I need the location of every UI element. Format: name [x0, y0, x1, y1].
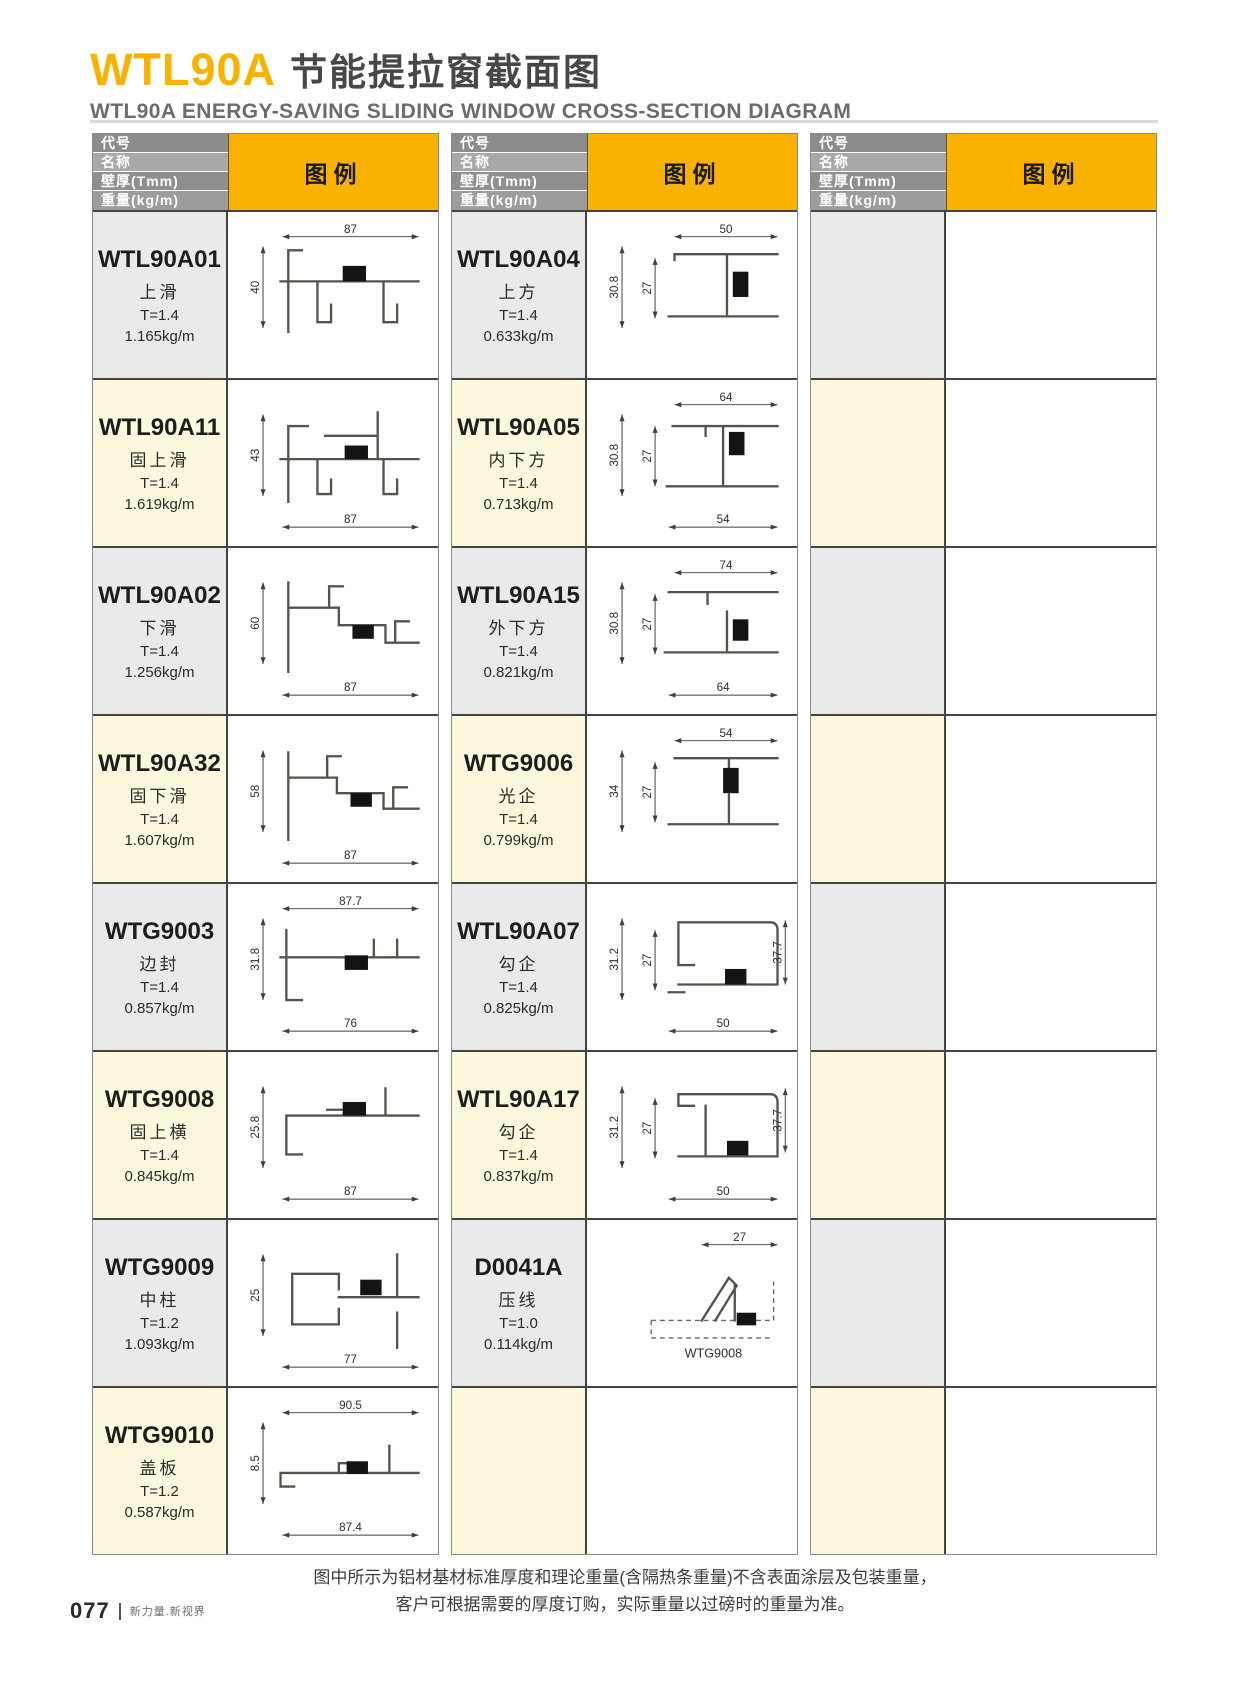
svg-text:34: 34: [608, 784, 621, 797]
profile-name: 中柱: [140, 1286, 180, 1311]
profile-weight: 0.799kg/m: [483, 832, 553, 849]
profile-info-cell: WTG9008固上横T=1.40.845kg/m: [93, 1052, 228, 1218]
diagram-cell: 8760: [228, 548, 438, 714]
table-header: 代号名称壁厚(Tmm)重量(kg/m)图例: [452, 134, 797, 212]
cross-section-drawing: 5031.22737.7: [589, 1055, 795, 1215]
table-row: [452, 1388, 797, 1554]
svg-text:87: 87: [344, 513, 357, 526]
profile-weight: 1.093kg/m: [124, 1336, 194, 1353]
profile-weight: 1.256kg/m: [124, 664, 194, 681]
svg-text:43: 43: [249, 449, 262, 462]
profile-name: 下滑: [140, 614, 180, 639]
profile-thickness: T=1.4: [499, 979, 538, 996]
profile-info-cell: WTG9006光企T=1.40.799kg/m: [452, 716, 587, 882]
diagram-cell: [946, 548, 1156, 714]
svg-text:40: 40: [249, 280, 262, 293]
diagram-cell: 27WTG9008: [587, 1220, 797, 1386]
profile-weight: 0.825kg/m: [483, 1000, 553, 1017]
profile-info-cell: [452, 1388, 587, 1554]
profile-weight: 1.165kg/m: [124, 328, 194, 345]
diagram-cell: 90.587.48.5: [228, 1388, 438, 1554]
header-field-label: 名称: [452, 153, 587, 172]
cross-section-drawing: 27WTG9008: [589, 1223, 795, 1383]
profile-thickness: T=1.4: [499, 475, 538, 492]
diagram-cell: 5030.827: [587, 212, 797, 378]
diagram-cell: [946, 1052, 1156, 1218]
diagram-cell: 8758: [228, 716, 438, 882]
profile-info-cell: [811, 212, 946, 378]
svg-text:8.5: 8.5: [249, 1455, 262, 1471]
svg-text:87.4: 87.4: [339, 1521, 362, 1534]
profile-thickness: T=1.2: [140, 1315, 179, 1332]
table-row: WTG9010盖板T=1.20.587kg/m90.587.48.5: [93, 1388, 438, 1554]
cross-section-drawing: 5031.22737.7: [589, 887, 795, 1047]
table-row: WTL90A15外下方T=1.40.821kg/m746430.827: [452, 548, 797, 716]
svg-text:37.7: 37.7: [771, 941, 784, 964]
header-field-label: 壁厚(Tmm): [452, 172, 587, 191]
diagram-cell: 5031.22737.7: [587, 1052, 797, 1218]
profile-info-cell: WTL90A07勾企T=1.40.825kg/m: [452, 884, 587, 1050]
page-footer: 077 新力量.新视界: [70, 1598, 206, 1624]
cross-section-drawing: 645430.827: [589, 383, 795, 543]
catalog-page: WTL90A 节能提拉窗截面图 WTL90A ENERGY-SAVING SLI…: [0, 0, 1239, 1681]
profile-name: 内下方: [489, 446, 549, 471]
svg-text:30.8: 30.8: [608, 276, 621, 299]
profile-info-cell: [811, 548, 946, 714]
profile-name: 上滑: [140, 278, 180, 303]
svg-text:76: 76: [344, 1017, 357, 1030]
profile-name: 固下滑: [130, 782, 190, 807]
profiles-table-3: 代号名称壁厚(Tmm)重量(kg/m)图例: [810, 133, 1157, 1555]
profile-name: 固上横: [130, 1118, 190, 1143]
diagram-cell: 543427: [587, 716, 797, 882]
svg-text:50: 50: [717, 1017, 730, 1030]
svg-text:WTG9008: WTG9008: [685, 1346, 743, 1360]
header-field-labels: 代号名称壁厚(Tmm)重量(kg/m): [452, 134, 587, 210]
profile-weight: 0.713kg/m: [483, 496, 553, 513]
profile-info-cell: WTL90A32固下滑T=1.41.607kg/m: [93, 716, 228, 882]
cross-section-drawing: 87.77631.8: [230, 887, 436, 1047]
svg-text:87: 87: [344, 681, 357, 694]
page-number: 077: [70, 1598, 110, 1624]
profile-code: WTL90A01: [98, 246, 221, 274]
profile-thickness: T=1.0: [499, 1315, 538, 1332]
divider-rule: [90, 120, 1158, 123]
cross-section-drawing: 8740: [230, 215, 436, 375]
profile-thickness: T=1.4: [499, 811, 538, 828]
diagram-cell: [946, 1388, 1156, 1554]
footer-note: 图中所示为铝材基材标准厚度和理论重量(含隔热条重量)不含表面涂层及包装重量， 客…: [92, 1564, 1158, 1618]
profile-info-cell: WTL90A11固上滑T=1.41.619kg/m: [93, 380, 228, 546]
legend-header: 图例: [587, 134, 797, 210]
profile-code: D0041A: [474, 1254, 562, 1282]
profile-code: WTG9008: [105, 1086, 214, 1114]
table-row: WTG9008固上横T=1.40.845kg/m8725.8: [93, 1052, 438, 1220]
profile-code: WTL90A07: [457, 918, 580, 946]
cross-section-drawing: 746430.827: [589, 551, 795, 711]
table-row: WTL90A11固上滑T=1.41.619kg/m8743: [93, 380, 438, 548]
table-row: WTG9003边封T=1.40.857kg/m87.77631.8: [93, 884, 438, 1052]
header-field-labels: 代号名称壁厚(Tmm)重量(kg/m): [811, 134, 946, 210]
profile-info-cell: WTL90A01上滑T=1.41.165kg/m: [93, 212, 228, 378]
svg-text:54: 54: [720, 727, 733, 740]
table-row: [811, 1388, 1156, 1554]
header-field-label: 重量(kg/m): [93, 191, 228, 210]
table-row: [811, 380, 1156, 548]
footer-tagline: 新力量.新视界: [130, 1603, 206, 1619]
diagram-cell: 746430.827: [587, 548, 797, 714]
table-row: WTL90A02下滑T=1.41.256kg/m8760: [93, 548, 438, 716]
svg-text:27: 27: [733, 1231, 746, 1244]
profile-code: WTG9003: [105, 918, 214, 946]
cross-section-drawing: 8743: [230, 383, 436, 543]
profile-thickness: T=1.4: [140, 643, 179, 660]
header-field-label: 重量(kg/m): [452, 191, 587, 210]
svg-text:87: 87: [344, 1185, 357, 1198]
profile-weight: 0.857kg/m: [124, 1000, 194, 1017]
profile-info-cell: [811, 1220, 946, 1386]
table-row: WTG9006光企T=1.40.799kg/m543427: [452, 716, 797, 884]
footer-note-line2: 客户可根据需要的厚度订购，实际重量以过磅时的重量为准。: [92, 1591, 1158, 1618]
table-header: 代号名称壁厚(Tmm)重量(kg/m)图例: [93, 134, 438, 212]
profile-name: 勾企: [499, 1118, 539, 1143]
diagram-cell: 7725: [228, 1220, 438, 1386]
profile-code: WTL90A04: [457, 246, 580, 274]
profile-info-cell: [811, 1388, 946, 1554]
profile-code: WTG9009: [105, 1254, 214, 1282]
title-block: WTL90A 节能提拉窗截面图 WTL90A ENERGY-SAVING SLI…: [90, 42, 851, 124]
table-row: WTG9009中柱T=1.21.093kg/m7725: [93, 1220, 438, 1388]
profile-weight: 0.837kg/m: [483, 1168, 553, 1185]
svg-text:27: 27: [641, 954, 654, 967]
profile-name: 压线: [499, 1286, 539, 1311]
profile-info-cell: WTL90A02下滑T=1.41.256kg/m: [93, 548, 228, 714]
profile-code: WTL90A02: [98, 582, 221, 610]
cross-section-drawing: 8725.8: [230, 1055, 436, 1215]
diagram-cell: 87.77631.8: [228, 884, 438, 1050]
profile-code: WTG9010: [105, 1422, 214, 1450]
header-field-label: 代号: [93, 134, 228, 153]
svg-text:30.8: 30.8: [608, 612, 621, 635]
table-row: [811, 1220, 1156, 1388]
profile-info-cell: WTL90A05内下方T=1.40.713kg/m: [452, 380, 587, 546]
profiles-table-1: 代号名称壁厚(Tmm)重量(kg/m)图例WTL90A01上滑T=1.41.16…: [92, 133, 439, 1555]
profile-thickness: T=1.4: [499, 307, 538, 324]
cross-section-drawing: 543427: [589, 719, 795, 879]
svg-text:31.2: 31.2: [608, 1116, 621, 1139]
svg-text:30.8: 30.8: [608, 444, 621, 467]
profile-code: WTL90A32: [98, 750, 221, 778]
svg-text:27: 27: [641, 618, 654, 631]
profile-weight: 0.114kg/m: [484, 1336, 553, 1353]
diagram-cell: 645430.827: [587, 380, 797, 546]
svg-text:64: 64: [720, 391, 733, 404]
svg-text:25: 25: [249, 1289, 262, 1302]
footer-separator: [119, 1603, 121, 1620]
profile-weight: 0.633kg/m: [483, 328, 553, 345]
cross-section-drawing: 7725: [230, 1223, 436, 1383]
diagram-cell: 8725.8: [228, 1052, 438, 1218]
cross-section-drawing: 5030.827: [589, 215, 795, 375]
profile-name: 光企: [499, 782, 539, 807]
table-row: [811, 716, 1156, 884]
diagram-cell: [946, 716, 1156, 882]
svg-text:27: 27: [641, 786, 654, 799]
svg-text:54: 54: [717, 513, 730, 526]
profiles-table-2: 代号名称壁厚(Tmm)重量(kg/m)图例WTL90A04上方T=1.40.63…: [451, 133, 798, 1555]
table-row: WTL90A17勾企T=1.40.837kg/m5031.22737.7: [452, 1052, 797, 1220]
diagram-cell: [946, 1220, 1156, 1386]
diagram-cell: [946, 380, 1156, 546]
profile-weight: 1.607kg/m: [124, 832, 194, 849]
profile-thickness: T=1.4: [140, 307, 179, 324]
header-field-labels: 代号名称壁厚(Tmm)重量(kg/m): [93, 134, 228, 210]
profile-thickness: T=1.4: [499, 1147, 538, 1164]
table-row: WTL90A07勾企T=1.40.825kg/m5031.22737.7: [452, 884, 797, 1052]
diagram-cell: 8743: [228, 380, 438, 546]
svg-text:64: 64: [717, 681, 730, 694]
profile-name: 边封: [140, 950, 180, 975]
page-title: WTL90A 节能提拉窗截面图: [90, 42, 851, 96]
header-field-label: 代号: [452, 134, 587, 153]
svg-text:25.8: 25.8: [249, 1116, 262, 1139]
svg-text:90.5: 90.5: [339, 1399, 362, 1412]
cross-section-drawing: 8758: [230, 719, 436, 879]
profile-info-cell: [811, 380, 946, 546]
profile-thickness: T=1.4: [499, 643, 538, 660]
profile-info-cell: WTL90A04上方T=1.40.633kg/m: [452, 212, 587, 378]
profile-code: WTL90A15: [457, 582, 580, 610]
diagram-cell: [946, 884, 1156, 1050]
profile-code: WTG9006: [464, 750, 573, 778]
profile-code: WTL90A17: [457, 1086, 580, 1114]
title-chinese: 节能提拉窗截面图: [290, 42, 602, 96]
table-row: WTL90A04上方T=1.40.633kg/m5030.827: [452, 212, 797, 380]
footer-note-line1: 图中所示为铝材基材标准厚度和理论重量(含隔热条重量)不含表面涂层及包装重量，: [92, 1564, 1158, 1591]
header-field-label: 代号: [811, 134, 946, 153]
profile-thickness: T=1.2: [140, 1483, 179, 1500]
profile-thickness: T=1.4: [140, 811, 179, 828]
profile-info-cell: [811, 884, 946, 1050]
diagram-cell: 5031.22737.7: [587, 884, 797, 1050]
diagram-cell: [587, 1388, 797, 1554]
profile-thickness: T=1.4: [140, 475, 179, 492]
header-field-label: 壁厚(Tmm): [811, 172, 946, 191]
profile-weight: 0.845kg/m: [124, 1168, 194, 1185]
table-row: [811, 212, 1156, 380]
diagram-cell: [946, 212, 1156, 378]
header-field-label: 重量(kg/m): [811, 191, 946, 210]
cross-section-drawing: 90.587.48.5: [230, 1391, 436, 1551]
svg-text:87.7: 87.7: [339, 895, 362, 908]
svg-text:74: 74: [720, 559, 733, 572]
profile-name: 外下方: [489, 614, 549, 639]
table-row: WTL90A01上滑T=1.41.165kg/m8740: [93, 212, 438, 380]
svg-text:87: 87: [344, 223, 357, 236]
svg-text:31.8: 31.8: [249, 948, 262, 971]
svg-text:50: 50: [720, 223, 733, 236]
profile-info-cell: WTG9009中柱T=1.21.093kg/m: [93, 1220, 228, 1386]
profile-info-cell: WTG9010盖板T=1.20.587kg/m: [93, 1388, 228, 1554]
profile-tables-area: 代号名称壁厚(Tmm)重量(kg/m)图例WTL90A01上滑T=1.41.16…: [92, 133, 1157, 1555]
svg-text:27: 27: [641, 282, 654, 295]
profile-name: 固上滑: [130, 446, 190, 471]
profile-weight: 0.587kg/m: [124, 1504, 194, 1521]
profile-weight: 0.821kg/m: [483, 664, 553, 681]
profile-info-cell: D0041A压线T=1.00.114kg/m: [452, 1220, 587, 1386]
table-row: D0041A压线T=1.00.114kg/m27WTG9008: [452, 1220, 797, 1388]
svg-text:27: 27: [641, 1122, 654, 1135]
profile-info-cell: [811, 1052, 946, 1218]
svg-text:27: 27: [641, 450, 654, 463]
legend-header: 图例: [946, 134, 1156, 210]
table-row: WTL90A05内下方T=1.40.713kg/m645430.827: [452, 380, 797, 548]
profile-info-cell: [811, 716, 946, 882]
profile-weight: 1.619kg/m: [124, 496, 194, 513]
profile-name: 盖板: [140, 1454, 180, 1479]
cross-section-drawing: 8760: [230, 551, 436, 711]
svg-text:87: 87: [344, 849, 357, 862]
header-field-label: 壁厚(Tmm): [93, 172, 228, 191]
profile-info-cell: WTL90A15外下方T=1.40.821kg/m: [452, 548, 587, 714]
svg-text:31.2: 31.2: [608, 948, 621, 971]
legend-header: 图例: [228, 134, 438, 210]
table-row: [811, 884, 1156, 1052]
profile-code: WTL90A11: [99, 414, 220, 442]
profile-thickness: T=1.4: [140, 979, 179, 996]
table-row: [811, 1052, 1156, 1220]
profile-thickness: T=1.4: [140, 1147, 179, 1164]
svg-text:37.7: 37.7: [771, 1109, 784, 1132]
profile-info-cell: WTL90A17勾企T=1.40.837kg/m: [452, 1052, 587, 1218]
profile-name: 上方: [499, 278, 539, 303]
header-field-label: 名称: [811, 153, 946, 172]
diagram-cell: 8740: [228, 212, 438, 378]
svg-text:58: 58: [249, 785, 262, 798]
table-row: WTL90A32固下滑T=1.41.607kg/m8758: [93, 716, 438, 884]
table-header: 代号名称壁厚(Tmm)重量(kg/m)图例: [811, 134, 1156, 212]
svg-text:50: 50: [717, 1185, 730, 1198]
table-row: [811, 548, 1156, 716]
profile-code: WTL90A05: [457, 414, 580, 442]
profile-info-cell: WTG9003边封T=1.40.857kg/m: [93, 884, 228, 1050]
profile-name: 勾企: [499, 950, 539, 975]
svg-text:77: 77: [344, 1353, 357, 1366]
title-series-code: WTL90A: [90, 44, 276, 96]
svg-text:60: 60: [249, 616, 262, 629]
header-field-label: 名称: [93, 153, 228, 172]
